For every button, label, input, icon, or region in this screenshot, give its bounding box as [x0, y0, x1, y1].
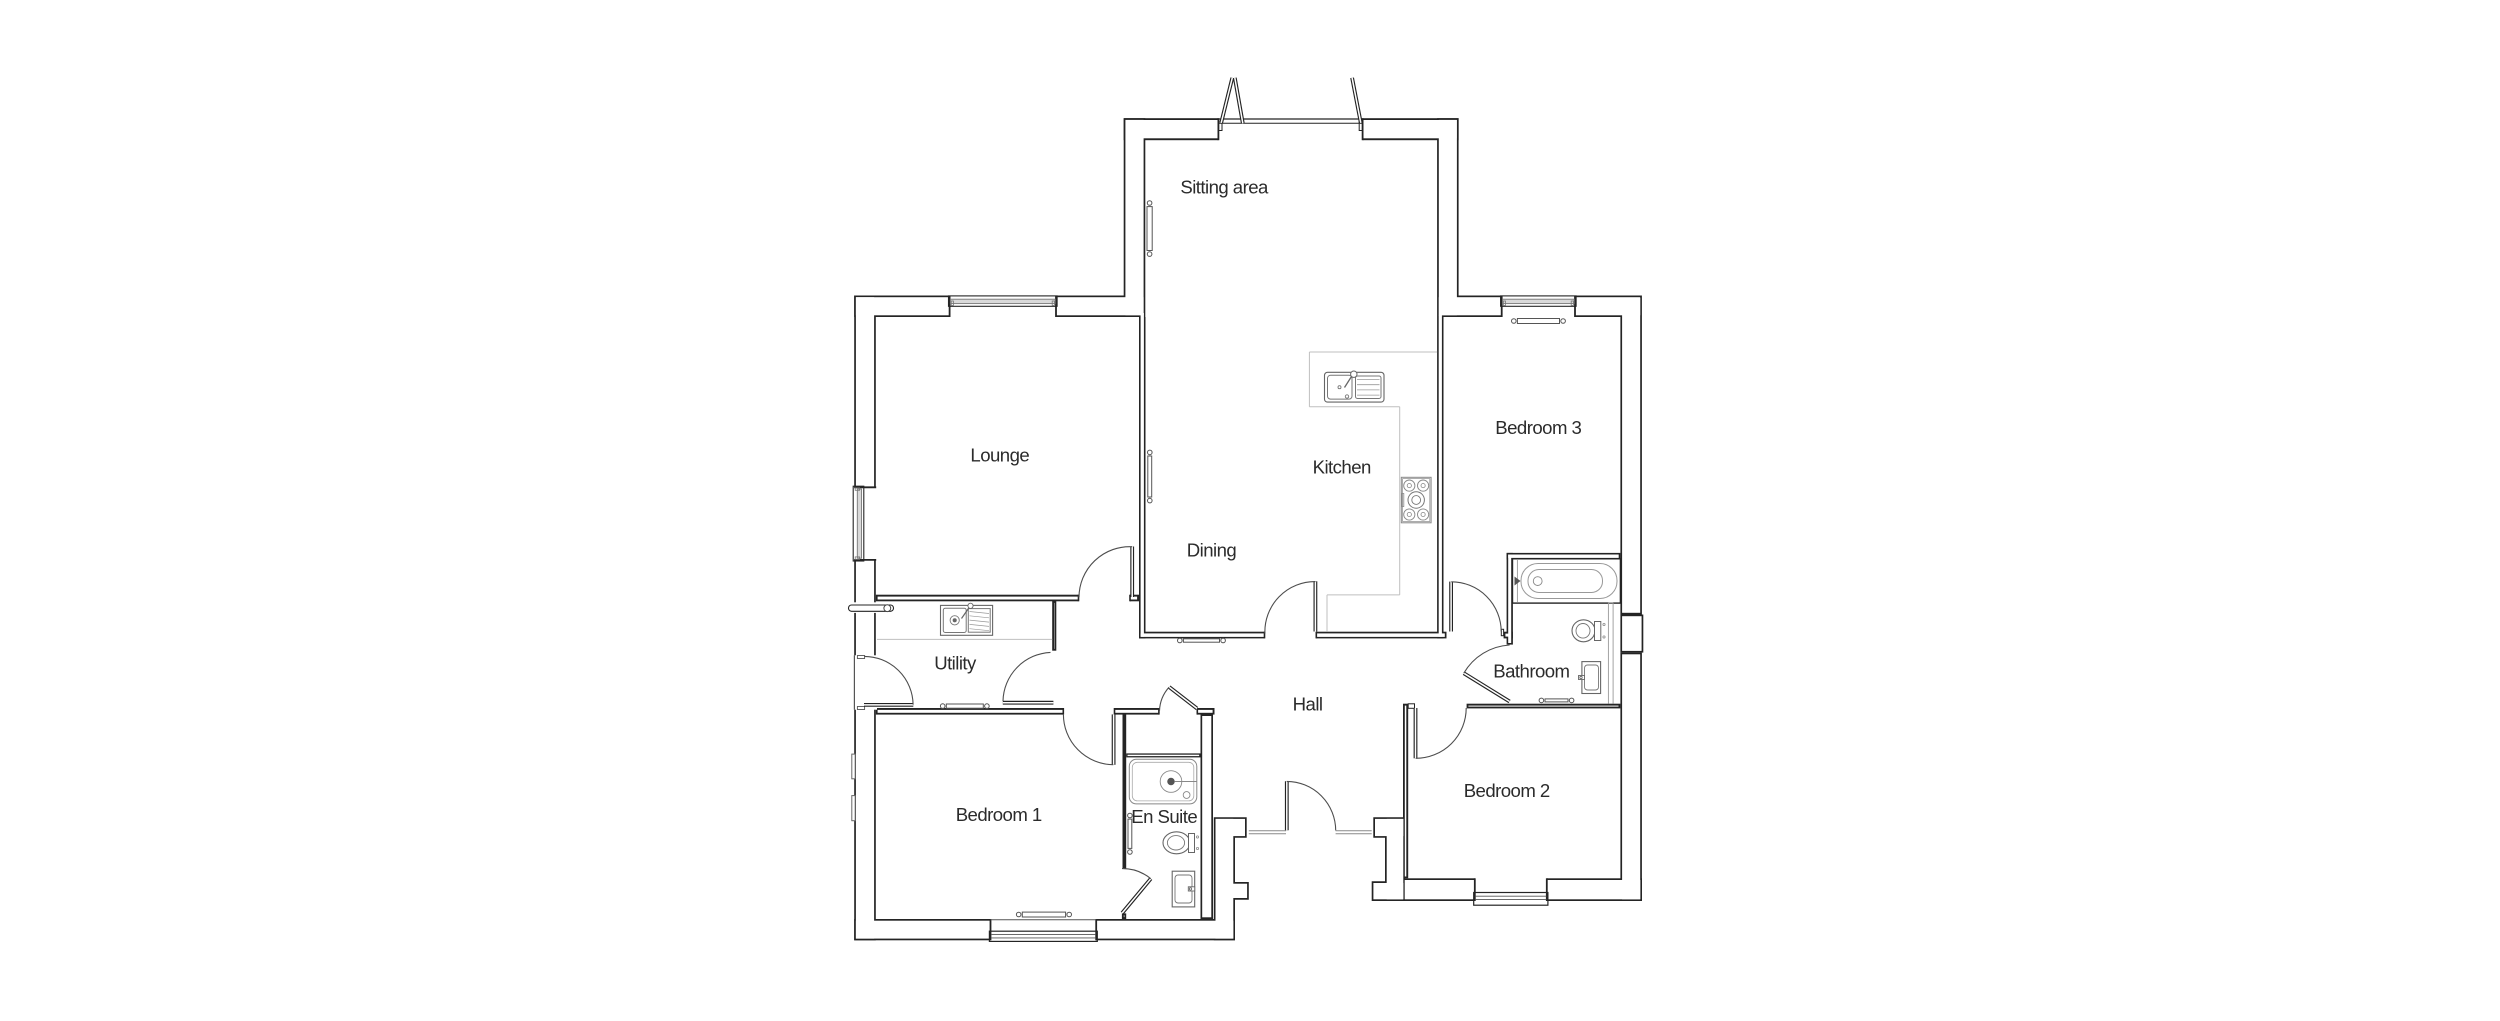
svg-text:Hall: Hall [1293, 694, 1323, 715]
svg-text:Bathroom: Bathroom [1493, 661, 1569, 682]
svg-text:Bedroom 2: Bedroom 2 [1464, 780, 1550, 801]
svg-text:En Suite: En Suite [1131, 806, 1197, 827]
svg-text:Utility: Utility [934, 653, 977, 674]
svg-text:Kitchen: Kitchen [1313, 457, 1371, 478]
svg-text:Bedroom 1: Bedroom 1 [956, 804, 1042, 825]
svg-text:Sitting area: Sitting area [1180, 177, 1269, 198]
svg-text:Lounge: Lounge [970, 444, 1029, 465]
svg-text:Bedroom 3: Bedroom 3 [1495, 417, 1581, 438]
svg-text:Dining: Dining [1187, 540, 1237, 561]
